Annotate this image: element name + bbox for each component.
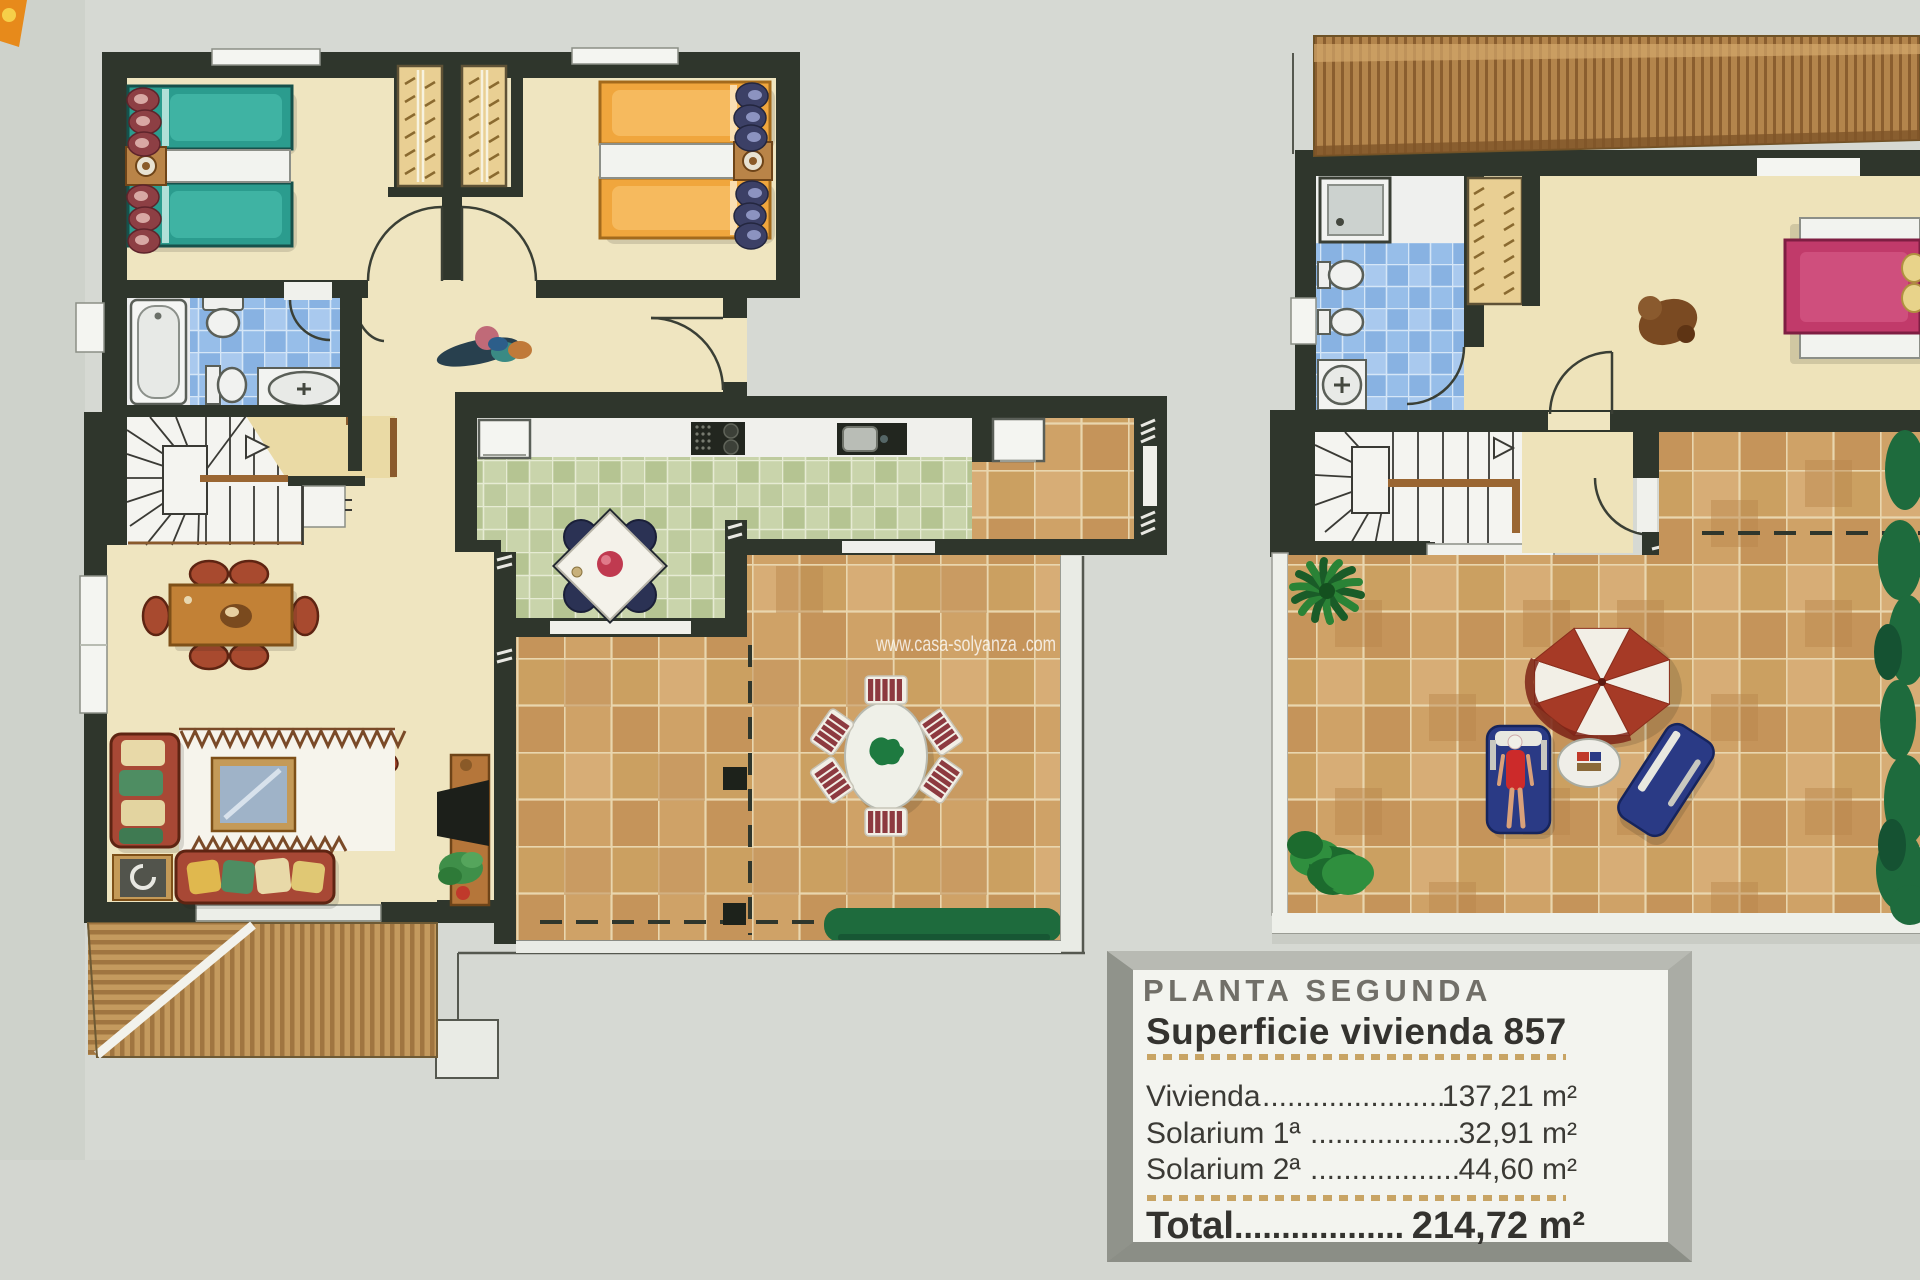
svg-text:Total: Total <box>1146 1205 1234 1247</box>
svg-text:Solarium 1ª: Solarium 1ª <box>1146 1117 1301 1150</box>
svg-text:......................: ...................... <box>1262 1080 1445 1113</box>
svg-text:..................: .................. <box>1310 1117 1460 1150</box>
svg-text:Vivienda: Vivienda <box>1146 1080 1261 1113</box>
svg-text:Superficie vivienda 857: Superficie vivienda 857 <box>1146 1011 1567 1052</box>
svg-text:Solarium 2ª: Solarium 2ª <box>1146 1153 1301 1186</box>
svg-text:137,21 m²: 137,21 m² <box>1442 1080 1577 1113</box>
svg-text:www.casa-solyanza .com: www.casa-solyanza .com <box>875 633 1056 656</box>
svg-text:PLANTA SEGUNDA: PLANTA SEGUNDA <box>1143 973 1492 1008</box>
svg-text:214,72 m²: 214,72 m² <box>1412 1205 1585 1247</box>
svg-text:32,91 m²: 32,91 m² <box>1459 1117 1577 1150</box>
svg-text:..................: .................. <box>1234 1208 1404 1246</box>
svg-text:44,60 m²: 44,60 m² <box>1459 1153 1577 1186</box>
svg-text:..................: .................. <box>1310 1153 1460 1186</box>
